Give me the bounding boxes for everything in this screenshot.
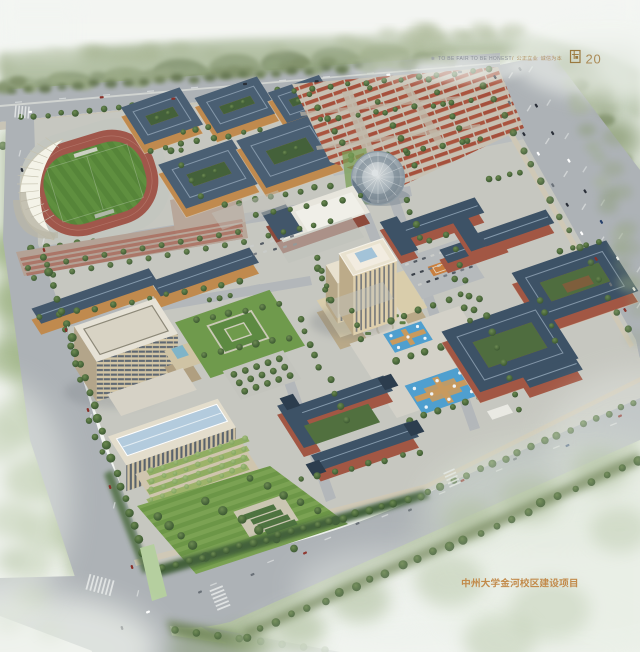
svg-text:✽: ✽ xyxy=(431,56,435,61)
svg-text:TO BE FAIR TO BE HONEST: TO BE FAIR TO BE HONEST xyxy=(438,56,512,62)
svg-text:20: 20 xyxy=(586,52,602,67)
